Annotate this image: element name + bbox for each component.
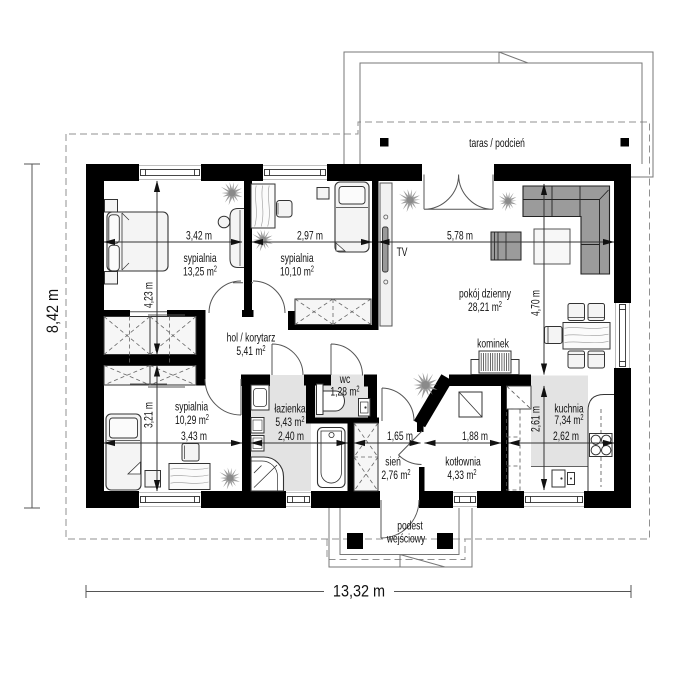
svg-text:łazienka: łazienka [274,403,305,416]
svg-text:wc: wc [339,374,350,387]
svg-text:4,33 m2: 4,33 m2 [447,469,476,482]
svg-text:hol / korytarz: hol / korytarz [227,332,276,345]
svg-text:3,43 m: 3,43 m [181,431,207,444]
svg-text:10,29 m2: 10,29 m2 [175,414,209,427]
svg-text:kotłownia: kotłownia [445,456,481,469]
svg-text:sypialnia: sypialnia [183,253,216,266]
svg-text:5,41 m2: 5,41 m2 [236,345,265,358]
svg-text:2,76 m2: 2,76 m2 [381,469,410,482]
svg-text:sień: sień [385,456,401,469]
svg-text:5,78 m: 5,78 m [447,230,473,243]
svg-text:pokój dzienny: pokój dzienny [459,288,512,301]
svg-text:13,32 m: 13,32 m [333,582,385,600]
svg-text:sypialnia: sypialnia [280,253,313,266]
svg-text:28,21 m2: 28,21 m2 [468,301,502,314]
svg-text:7,34 m2: 7,34 m2 [554,414,583,427]
svg-text:1,28 m2: 1,28 m2 [330,386,359,399]
svg-text:2,62 m: 2,62 m [553,431,579,444]
svg-text:8,42 m: 8,42 m [44,289,62,333]
svg-text:1,88 m: 1,88 m [462,431,488,444]
svg-text:podest: podest [397,520,423,533]
svg-text:4,23 m: 4,23 m [143,282,156,308]
svg-text:13,25 m2: 13,25 m2 [183,266,217,279]
svg-text:4,70 m: 4,70 m [530,290,543,316]
svg-text:wejściowy: wejściowy [386,533,426,546]
svg-text:taras / podcień: taras / podcień [469,138,525,151]
svg-text:2,61 m: 2,61 m [530,406,543,432]
svg-text:2,40 m: 2,40 m [278,431,304,444]
svg-text:3,42 m: 3,42 m [186,230,212,243]
svg-text:5,43 m2: 5,43 m2 [275,416,304,429]
svg-text:2,97 m: 2,97 m [297,230,323,243]
svg-text:1,65 m: 1,65 m [387,431,413,444]
svg-text:TV: TV [397,247,408,260]
svg-text:10,10 m2: 10,10 m2 [280,266,314,279]
svg-text:sypialnia: sypialnia [175,401,208,414]
svg-text:3,21 m: 3,21 m [143,402,156,428]
svg-text:kominek: kominek [477,338,509,351]
